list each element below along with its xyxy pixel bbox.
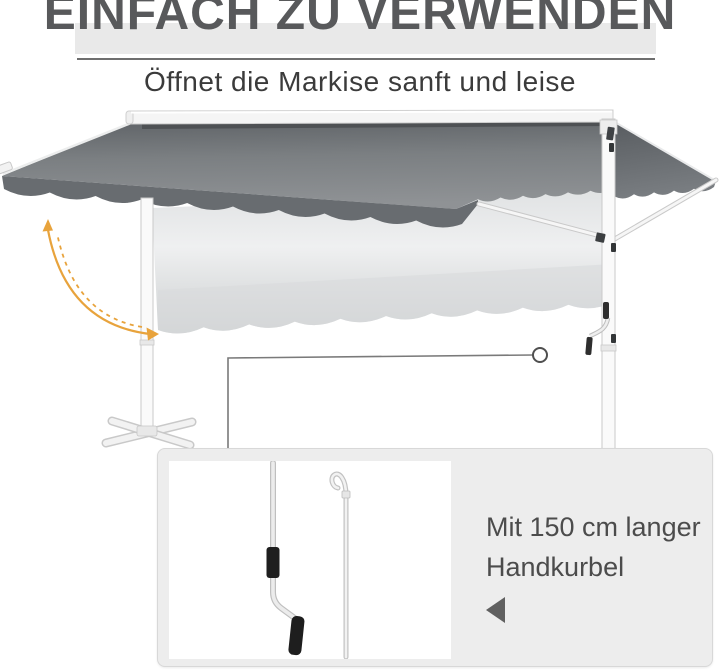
- prev-triangle-icon: [486, 597, 505, 623]
- info-panel: Mit 150 cm langer Handkurbel: [157, 448, 713, 667]
- arm-clamp: [595, 232, 606, 243]
- hook-rod-illustration: [332, 474, 350, 657]
- crank-inset-image: [169, 461, 451, 659]
- panel-text-line1: Mit 150 cm langer: [486, 507, 701, 547]
- callout-line: [228, 355, 533, 452]
- crank-tools-drawing: [169, 461, 451, 659]
- cassette-bar: [126, 110, 613, 129]
- crank-handle-illustration: [267, 463, 305, 656]
- panel-text: Mit 150 cm langer Handkurbel: [486, 507, 701, 587]
- panel-text-line2: Handkurbel: [486, 547, 701, 587]
- product-infographic: EINFACH ZU VERWENDEN Öffnet die Markise …: [0, 0, 720, 672]
- callout: [228, 348, 547, 452]
- callout-circle: [533, 348, 547, 362]
